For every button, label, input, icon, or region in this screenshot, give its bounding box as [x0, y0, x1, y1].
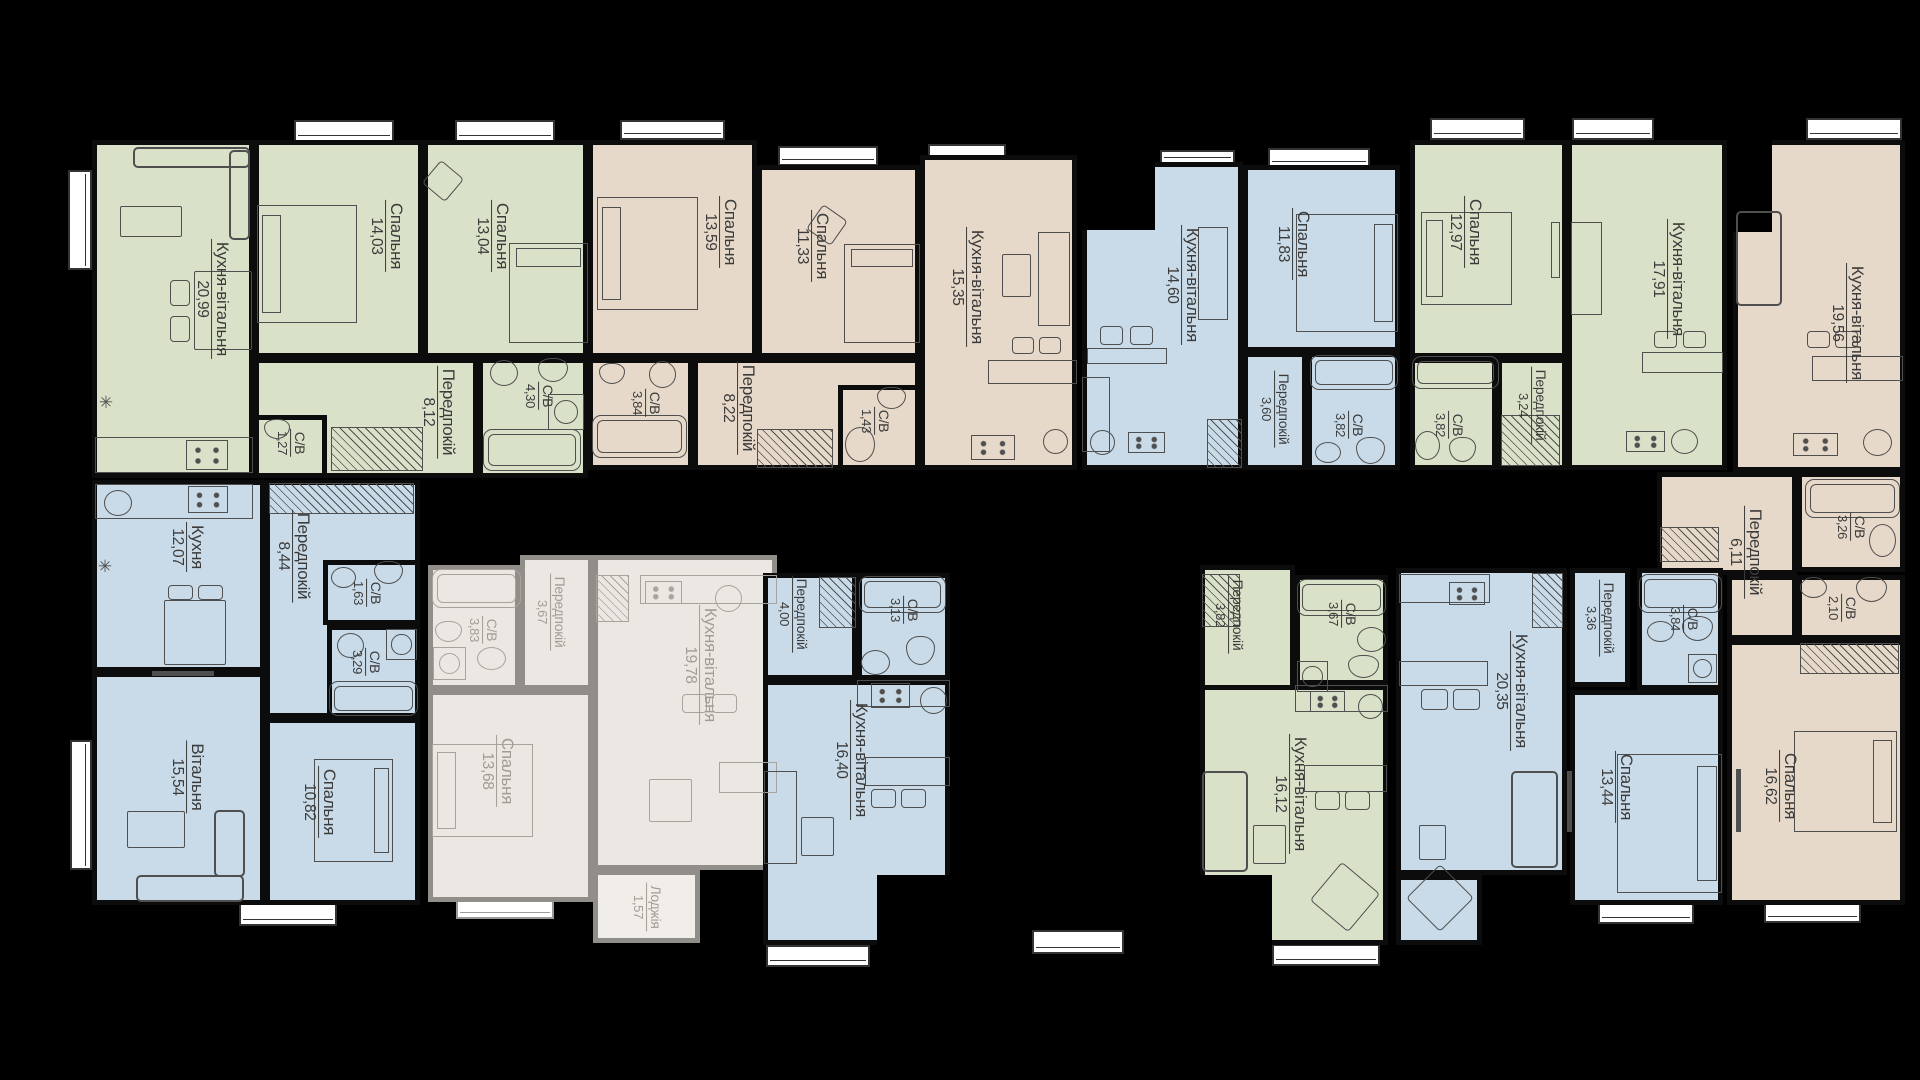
chair-icon [1683, 331, 1706, 348]
balcony [70, 740, 92, 870]
room-top-blue-2[interactable] [1243, 352, 1307, 470]
sink-icon [920, 687, 947, 714]
bed-icon [1421, 212, 1512, 305]
sink-icon [1043, 429, 1068, 454]
wall-cutout [877, 875, 950, 945]
table-icon [649, 779, 692, 822]
tub-icon [1412, 356, 1499, 389]
room-right-tan-corner-1[interactable] [1727, 575, 1797, 640]
tub-icon [329, 681, 418, 716]
tub-icon [1805, 479, 1900, 518]
sofa-icon [136, 875, 244, 902]
star-icon: ✳ [96, 558, 114, 576]
wardrobe-icon [1501, 415, 1560, 466]
counter-icon [1812, 356, 1903, 381]
table-icon [801, 817, 834, 856]
chair-icon [1012, 337, 1034, 354]
tub-icon [483, 429, 581, 471]
chair-icon [1835, 331, 1858, 348]
sink-icon [1869, 524, 1896, 557]
tub-icon [1310, 355, 1398, 390]
table-icon [127, 811, 185, 848]
wardrobe-icon [269, 483, 414, 514]
sofa-icon [1736, 211, 1782, 306]
wardrobe-icon [1202, 574, 1240, 627]
bed-icon [432, 744, 533, 837]
sink-icon [490, 360, 518, 386]
counter-icon [1399, 661, 1488, 686]
table-icon [120, 206, 182, 237]
balcony [455, 120, 555, 142]
balcony [1572, 118, 1654, 140]
sofa-icon [229, 150, 250, 240]
sink-icon [104, 490, 132, 516]
chair-icon [1130, 326, 1153, 345]
washer-icon [1688, 654, 1717, 683]
tub-icon [592, 415, 687, 458]
chair-icon [901, 789, 926, 808]
chair-icon [1315, 791, 1340, 810]
tv-icon [1567, 771, 1572, 832]
chair-icon [1654, 331, 1677, 348]
chair-icon [1100, 326, 1123, 345]
washer-icon [433, 647, 466, 680]
chair-icon [170, 316, 190, 342]
stove-icon [1310, 691, 1345, 712]
counter-icon [1571, 222, 1602, 315]
table-icon [164, 600, 226, 665]
counter-icon [1551, 222, 1560, 278]
balcony [620, 120, 725, 140]
wall-cutout [1200, 875, 1272, 945]
sink-icon [1090, 430, 1115, 455]
balcony [1598, 902, 1694, 924]
wall-cutout [1482, 875, 1567, 945]
room-bottom-faded-1[interactable] [520, 555, 593, 690]
stove-icon [186, 440, 228, 470]
balcony [294, 120, 394, 142]
chair-icon [170, 280, 190, 306]
sink-icon [845, 427, 875, 462]
bed-icon [314, 759, 393, 862]
counter-icon [764, 771, 797, 864]
table-icon [1253, 825, 1286, 864]
tv-icon [152, 671, 214, 676]
tub-icon [859, 576, 946, 613]
wardrobe-icon [819, 577, 856, 628]
sofa-icon [1511, 771, 1558, 868]
balcony [1272, 944, 1380, 966]
chair-icon [1039, 337, 1061, 354]
counter-icon [1642, 352, 1723, 373]
washer-icon [548, 394, 584, 430]
balcony [766, 945, 870, 967]
chair-icon [168, 585, 193, 600]
table-icon [1002, 254, 1031, 297]
sink-icon [715, 585, 742, 612]
chair-icon [1807, 331, 1830, 348]
stove-icon [1128, 432, 1165, 453]
sink-icon [1863, 429, 1892, 456]
chair-icon [1421, 689, 1448, 710]
sofa-icon [214, 810, 245, 877]
sink-icon [1415, 431, 1440, 460]
balcony [778, 146, 878, 166]
wardrobe-icon [331, 427, 423, 471]
star-icon: ✳ [97, 394, 115, 412]
bed-icon [597, 197, 698, 310]
chair-icon [1453, 689, 1480, 710]
tub-icon [1639, 574, 1722, 613]
counter-icon [988, 360, 1077, 384]
sofa-icon [1202, 771, 1248, 872]
counter-icon [1198, 227, 1228, 320]
balcony [1032, 930, 1124, 954]
wardrobe-icon [757, 429, 833, 468]
bed-icon [509, 243, 588, 343]
balcony [1430, 118, 1525, 140]
sink-icon [1671, 429, 1698, 454]
sink-icon [649, 361, 676, 388]
counter-icon [1087, 348, 1167, 364]
stove-icon [1449, 582, 1485, 605]
stove-icon [1626, 431, 1665, 452]
wardrobe-icon [596, 575, 629, 622]
counter-icon [95, 437, 253, 473]
room-bottom-faded-4[interactable] [593, 870, 700, 943]
bed-icon [1296, 214, 1398, 332]
wardrobe-icon [1800, 643, 1899, 674]
tub-icon [432, 569, 521, 608]
balcony [1806, 118, 1902, 140]
washer-icon [386, 629, 417, 660]
bed-icon [257, 205, 357, 323]
stove-icon [971, 435, 1015, 460]
sink-icon [861, 650, 890, 675]
bed-icon [844, 244, 920, 343]
chair-icon [682, 694, 707, 713]
counter-icon [865, 757, 950, 786]
balcony [68, 170, 92, 270]
tv-icon [1736, 769, 1741, 832]
counter-icon [1038, 232, 1070, 326]
table-icon [194, 271, 252, 350]
wardrobe-icon [1532, 573, 1563, 628]
stove-icon [645, 581, 682, 604]
sink-icon [1800, 577, 1827, 598]
chair-icon [1345, 791, 1370, 810]
chair-icon [712, 694, 737, 713]
stove-icon [1793, 433, 1838, 456]
bed-icon [1794, 731, 1897, 832]
chair-icon [198, 585, 223, 600]
floor-plan: Кухня-вітальня20,99Спальня14,03Спальня13… [0, 0, 1920, 1080]
wall-cutout [1082, 162, 1155, 230]
stove-icon [871, 683, 910, 708]
sink-icon [1358, 694, 1383, 719]
chair-icon [871, 789, 896, 808]
sink-icon [1357, 627, 1386, 652]
bed-icon [1617, 754, 1722, 893]
sink-icon [337, 633, 364, 658]
tub-icon [1297, 579, 1386, 616]
wardrobe-icon [1660, 527, 1719, 562]
sink-icon [1647, 621, 1674, 642]
table-icon [1419, 825, 1446, 860]
wardrobe-icon [1207, 419, 1242, 468]
sink-icon [477, 647, 506, 670]
sink-icon [331, 567, 356, 588]
room-bottom-right-blue-1[interactable] [1570, 568, 1630, 687]
sink-icon [1315, 442, 1341, 463]
stove-icon [188, 486, 228, 513]
counter-icon [1304, 765, 1387, 792]
